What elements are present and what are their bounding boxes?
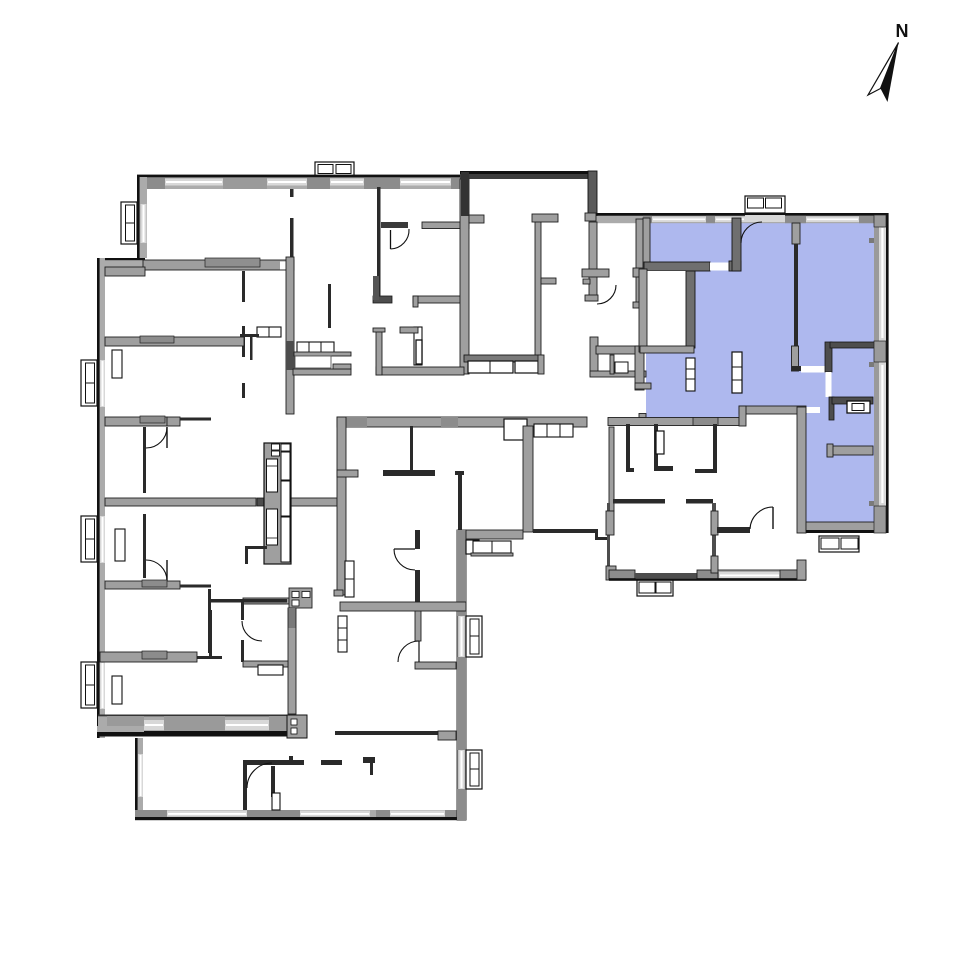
- svg-text:N: N: [896, 21, 909, 41]
